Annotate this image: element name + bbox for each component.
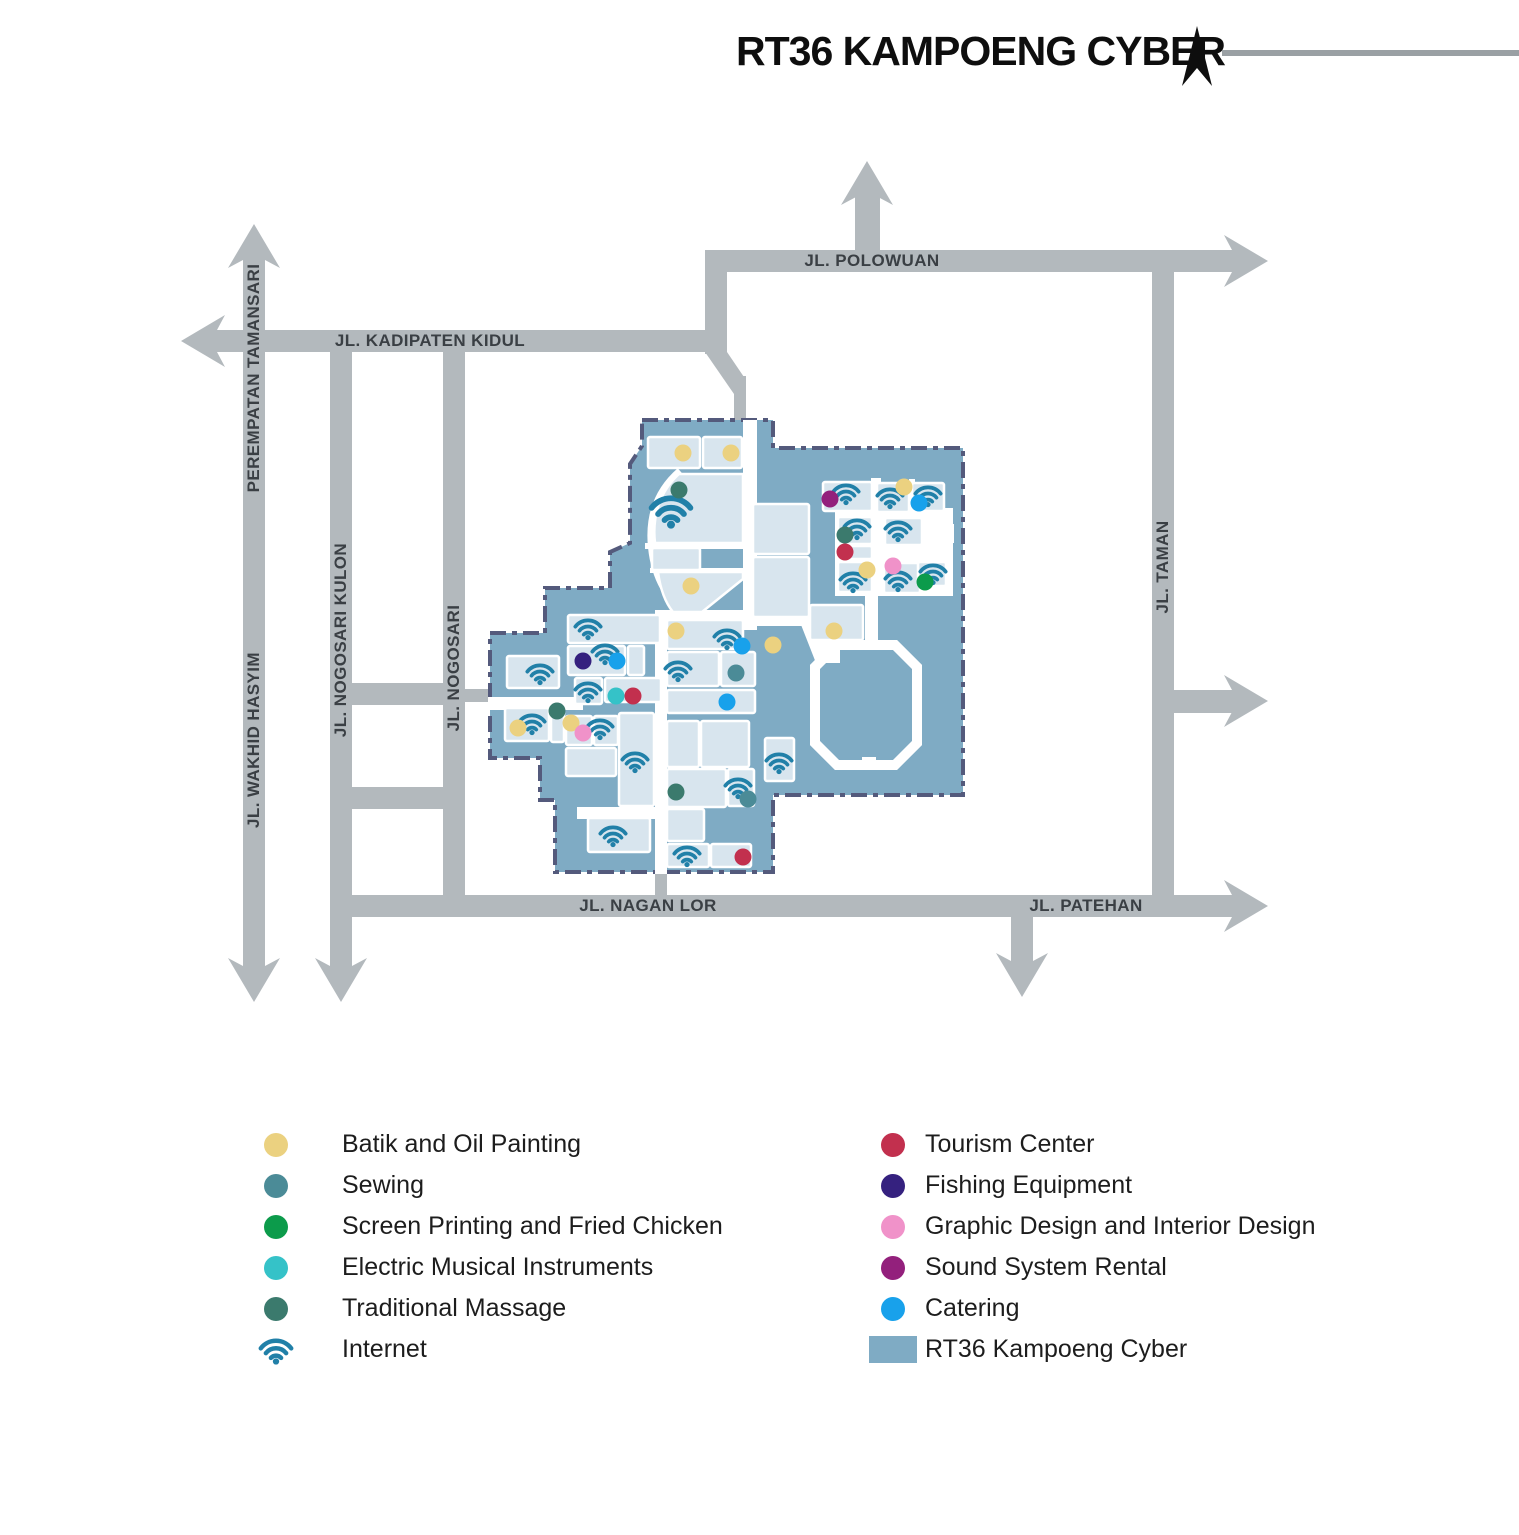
dot-catering [719,694,736,711]
legend-item: Internet [252,1329,723,1370]
massage-dot-icon [264,1297,288,1321]
legend-label: Batik and Oil Painting [342,1130,581,1159]
building-block [753,504,809,554]
dot-batik [765,637,782,654]
road-label: JL. NOGOSARI KULON [327,480,355,800]
building-block [566,748,616,776]
legend-label: Sound System Rental [925,1253,1167,1282]
dot-catering [911,495,928,512]
road-label: JL. WAKHID HASYIM [240,580,268,900]
legend-label: Screen Printing and Fried Chicken [342,1212,723,1241]
legend-label: Internet [342,1335,427,1364]
dot-graphic [885,558,902,575]
road-label: JL. TAMAN [1149,407,1177,727]
legend-item: RT36 Kampoeng Cyber [869,1329,1315,1370]
sewing-dot-icon [264,1174,288,1198]
building-block [753,557,809,617]
legend-label: Fishing Equipment [925,1171,1132,1200]
dot-sewing [740,791,757,808]
catering-dot-icon [881,1297,905,1321]
dot-catering [609,653,626,670]
building-block [648,437,700,468]
road-label: PEREMPATAN TAMANSARI [240,218,268,538]
dot-batik [826,623,843,640]
tourism-dot-icon [881,1133,905,1157]
legend-label: Catering [925,1294,1020,1323]
legend-label: RT36 Kampoeng Cyber [925,1335,1187,1364]
legend-label: Sewing [342,1171,424,1200]
dot-batik [723,445,740,462]
dot-batik [896,479,913,496]
dot-screen_printing [917,574,934,591]
legend-item: Catering [869,1288,1315,1329]
batik-dot-icon [264,1133,288,1157]
dot-batik [859,562,876,579]
road-label: JL. NOGOSARI [440,508,468,828]
dot-batik [510,720,527,737]
dot-tourism [837,544,854,561]
legend-label: Tourism Center [925,1130,1095,1159]
building-block [652,548,700,570]
legend-item: Sewing [252,1165,723,1206]
legend-item: Tourism Center [869,1124,1315,1165]
fishing-dot-icon [881,1174,905,1198]
dot-batik [675,445,692,462]
dot-batik [668,623,685,640]
dot-massage [549,703,566,720]
building-block [667,809,704,841]
legend-item: Fishing Equipment [869,1165,1315,1206]
dot-batik [683,578,700,595]
legend-item: Graphic Design and Interior Design [869,1206,1315,1247]
building-block [628,646,644,675]
dot-tourism [735,849,752,866]
road-label: JL. PATEHAN [926,892,1246,920]
road-label: JL. POLOWUAN [712,247,1032,275]
legend-label: Traditional Massage [342,1294,566,1323]
electric-dot-icon [264,1256,288,1280]
graphic-dot-icon [881,1215,905,1239]
legend-right-column: Tourism CenterFishing EquipmentGraphic D… [869,1124,1315,1370]
dot-tourism [625,688,642,705]
road-label: JL. NAGAN LOR [488,892,808,920]
dot-massage [668,784,685,801]
region-swatch-icon [869,1336,917,1363]
legend-label: Graphic Design and Interior Design [925,1212,1315,1241]
legend-item: Sound System Rental [869,1247,1315,1288]
dot-fishing [575,653,592,670]
dot-catering [734,638,751,655]
screen_printing-dot-icon [264,1215,288,1239]
map-canvas: RT36 KAMPOENG CYBER [0,0,1519,1535]
building-block [701,721,749,767]
dot-electric [608,688,625,705]
road-label: JL. KADIPATEN KIDUL [270,327,590,355]
legend-item: Electric Musical Instruments [252,1247,723,1288]
legend-label: Electric Musical Instruments [342,1253,653,1282]
dot-massage [671,482,688,499]
dot-sound [822,491,839,508]
dot-massage [837,527,854,544]
legend-item: Batik and Oil Painting [252,1124,723,1165]
wifi-icon [258,1335,294,1365]
legend-item: Screen Printing and Fried Chicken [252,1206,723,1247]
building-block [667,690,755,713]
building-block [667,721,699,767]
dot-graphic [575,725,592,742]
sound-dot-icon [881,1256,905,1280]
legend-item: Traditional Massage [252,1288,723,1329]
legend-left-column: Batik and Oil PaintingSewingScreen Print… [252,1124,723,1370]
dot-sewing [728,665,745,682]
